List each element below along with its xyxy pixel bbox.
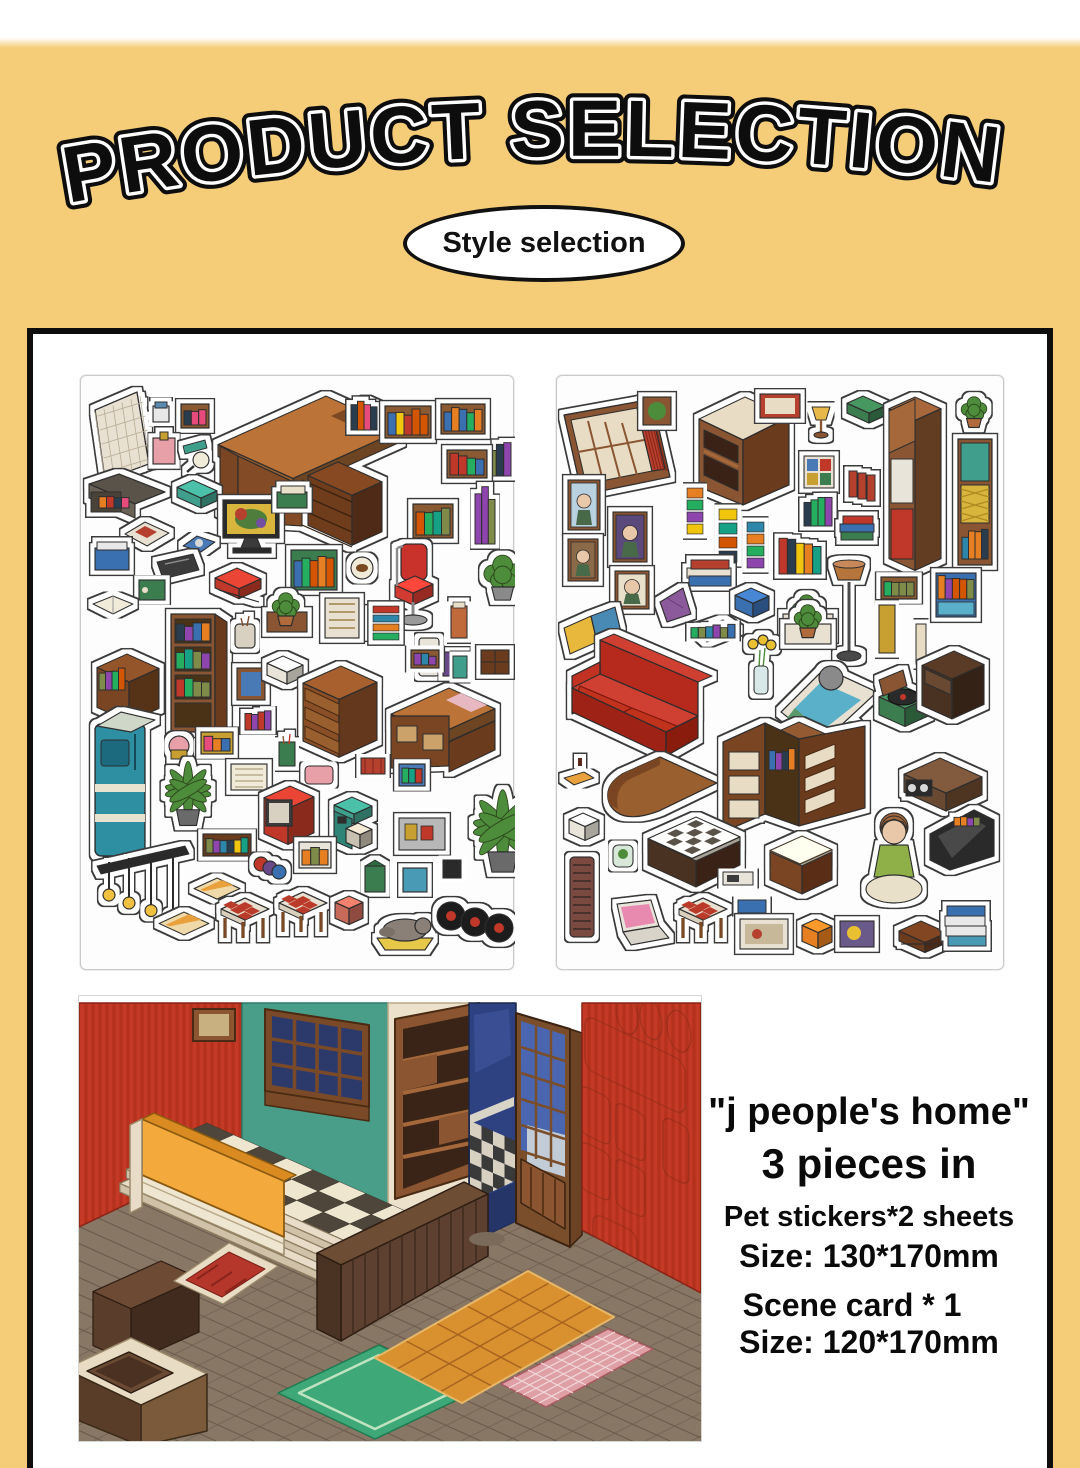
svg-text:PRODUCT SELECTION: PRODUCT SELECTION (56, 84, 1008, 220)
